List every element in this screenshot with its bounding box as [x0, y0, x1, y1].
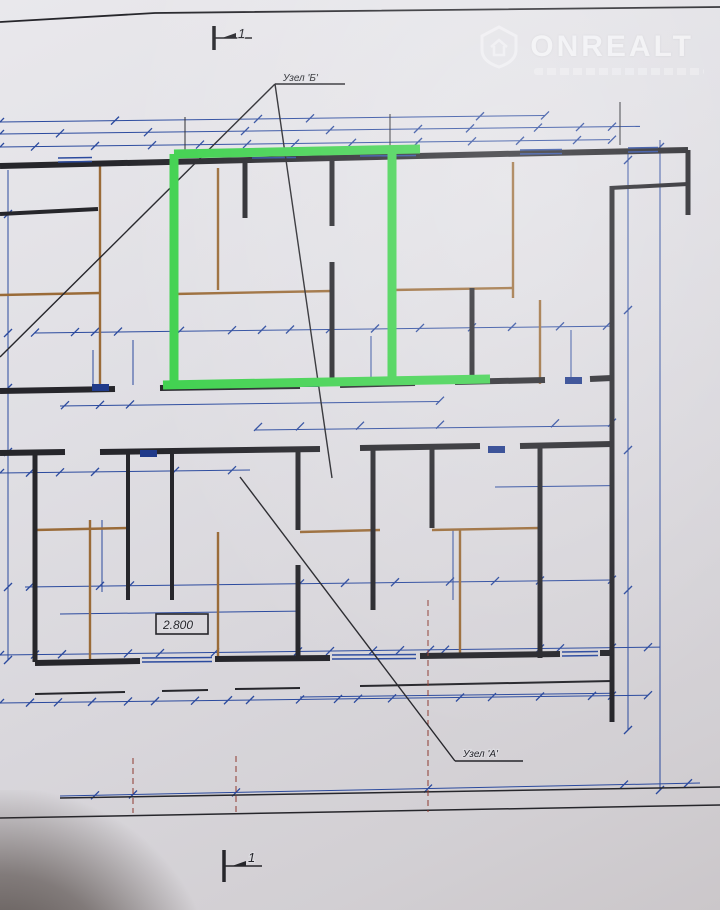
section-mark-flag: [222, 33, 236, 38]
wall: [610, 184, 688, 188]
elevation-mark: 2.800: [156, 614, 208, 634]
partition-wall: [174, 291, 332, 294]
dimension-tick: [126, 400, 134, 408]
window-mark: [628, 152, 658, 153]
node-bottom-label: Узел 'А': [462, 749, 499, 760]
wall: [35, 692, 125, 694]
door-mark: [488, 446, 505, 453]
dimension-line: [35, 326, 612, 333]
section-mark-flag: [232, 861, 246, 866]
window-mark: [562, 652, 598, 653]
dimension-line: [60, 401, 440, 406]
wall: [0, 209, 98, 214]
section-mark-bottom-number: 1: [248, 850, 255, 865]
window-mark: [520, 150, 562, 151]
wall: [162, 690, 208, 691]
window-mark: [562, 656, 598, 657]
window-mark: [332, 659, 416, 660]
section-mark-top-number: 1: [238, 26, 245, 41]
green-trace-glow: [174, 149, 420, 154]
wall: [100, 449, 320, 452]
partition-wall: [432, 528, 540, 530]
node-top-label: Узел 'Б': [282, 73, 319, 84]
window-mark: [58, 158, 92, 159]
partition-wall: [0, 293, 100, 295]
sheet-edge-line: [0, 7, 720, 22]
door-mark: [565, 377, 582, 384]
door-mark: [140, 450, 157, 457]
green-trace-glow: [163, 379, 490, 385]
wall: [420, 654, 560, 656]
dimension-tick: [436, 397, 444, 405]
wall: [590, 378, 612, 379]
window-mark: [142, 662, 212, 663]
dimension-line: [0, 140, 610, 147]
window-mark: [58, 162, 92, 163]
window-mark: [142, 658, 212, 659]
sheet-edge-line: [0, 805, 720, 818]
dimension-line: [0, 115, 545, 122]
wall: [35, 661, 140, 663]
dimension-line: [0, 126, 640, 134]
window-mark: [520, 154, 562, 155]
sheet-edge-line: [60, 787, 720, 798]
floorplan-svg: Узел 'Б' Узел 'А' 1 1 2.800: [0, 0, 720, 910]
dimension-tick: [61, 401, 69, 409]
window-mark: [252, 158, 296, 159]
dimension-tick: [96, 401, 104, 409]
partition-wall: [300, 530, 380, 532]
wall: [520, 444, 612, 446]
window-mark: [628, 148, 658, 149]
partition-wall: [35, 528, 128, 530]
wall: [360, 446, 480, 448]
wall: [215, 658, 330, 659]
dimension-line: [255, 426, 612, 430]
elevation-value: 2.800: [162, 618, 193, 632]
partition-wall: [392, 288, 513, 290]
node-leader: [240, 477, 455, 761]
blueprint-photo: Узел 'Б' Узел 'А' 1 1 2.800 ONREALT: [0, 0, 720, 910]
dimension-line: [495, 486, 612, 487]
door-mark: [92, 384, 109, 391]
wall: [235, 688, 300, 689]
node-leader: [0, 84, 275, 357]
